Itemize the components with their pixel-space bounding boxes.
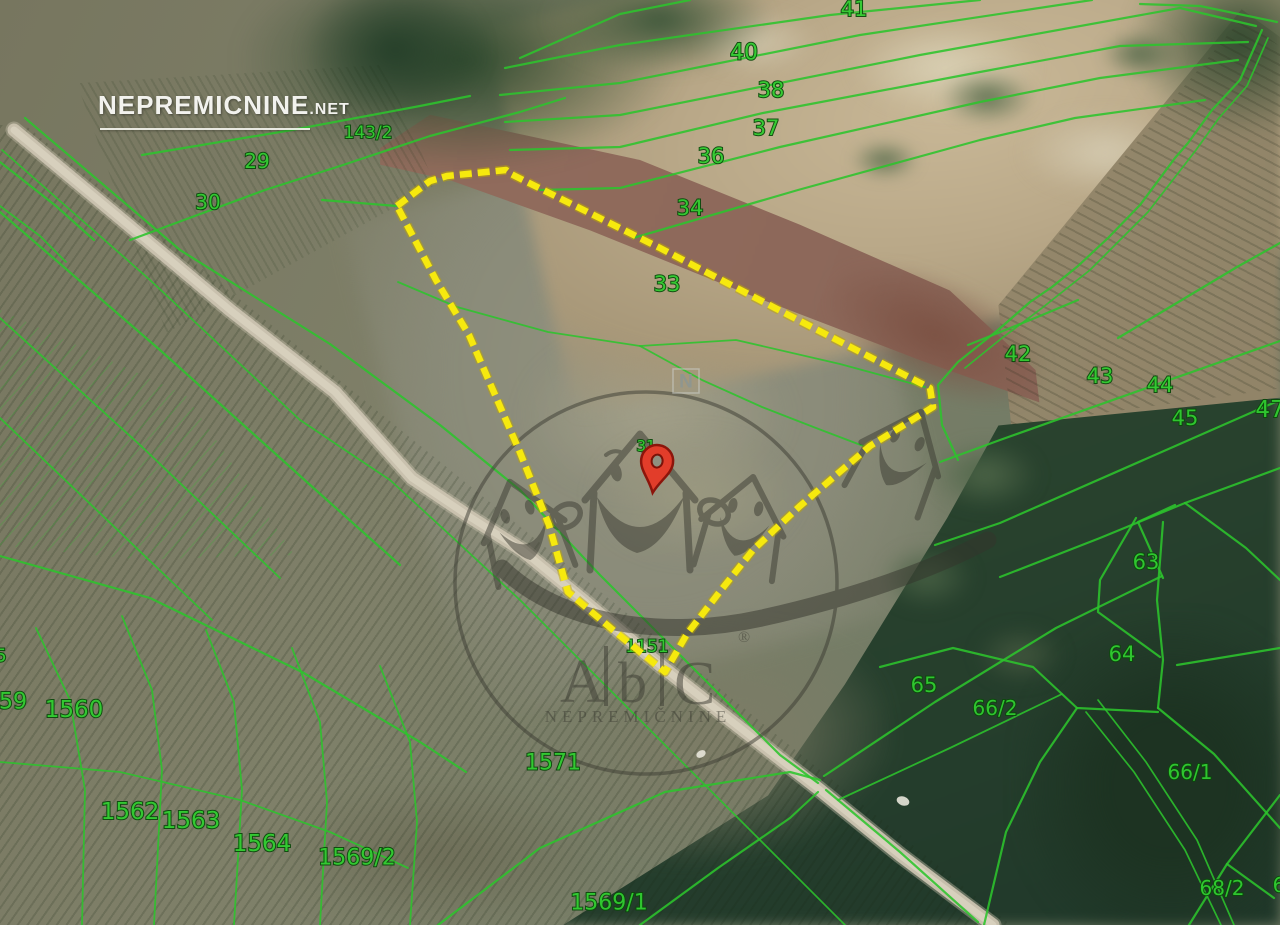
cadastral-line xyxy=(292,648,327,925)
cadastral-line xyxy=(2,150,845,925)
tree-clump xyxy=(940,70,1035,125)
divider-bar xyxy=(604,646,608,706)
tree-clump xyxy=(850,140,920,180)
cadastral-line xyxy=(25,118,818,783)
cadastral-line xyxy=(1138,505,1175,578)
house-wall xyxy=(686,493,690,570)
cadastral-line xyxy=(0,212,400,565)
cadastral-line xyxy=(1158,708,1280,828)
parcel-label-33: 33 xyxy=(654,272,681,296)
parcel-label-45: 45 xyxy=(1172,406,1199,430)
letter-c: C xyxy=(674,650,715,718)
watermark-circle xyxy=(455,392,837,774)
north-indicator: N xyxy=(673,369,699,393)
parcel-label-64: 64 xyxy=(1109,642,1136,666)
tree-clump xyxy=(1100,30,1180,78)
parcel-label-1563: 1563 xyxy=(162,808,221,834)
logo-underline xyxy=(100,128,310,130)
parcel-label-65: 65 xyxy=(911,673,938,697)
slope-field xyxy=(0,0,1280,925)
cadastral-line xyxy=(380,666,417,925)
abc-letters: A b C ® NEPREMIČNINE xyxy=(545,629,750,726)
tree-clump xyxy=(545,0,775,75)
forest xyxy=(0,0,1280,925)
highlighted-parcel-boundary xyxy=(397,170,933,672)
divider-bar xyxy=(660,646,664,706)
vineyard-rows xyxy=(0,0,1280,925)
cadastral-line xyxy=(640,346,866,447)
dense-parcel-lines xyxy=(0,0,1280,925)
letter-b: b xyxy=(618,650,647,715)
cadastral-line xyxy=(0,556,466,772)
cadastral-line xyxy=(540,60,1238,190)
cadastral-line xyxy=(1140,4,1277,22)
eyebrow xyxy=(606,451,624,455)
bottom-field xyxy=(523,601,908,888)
cadastral-line xyxy=(935,400,1280,545)
house-icon-right xyxy=(692,468,795,581)
cadastral-line xyxy=(36,628,85,925)
cadastral-line xyxy=(1098,518,1160,657)
cadastral-line xyxy=(824,576,1162,776)
house-wall xyxy=(590,493,594,570)
forest-clump xyxy=(880,545,975,610)
parcel-label-1569-1: 1569/1 xyxy=(570,891,647,916)
parcel-label-47: 47 xyxy=(1255,397,1280,423)
dry-field-patch xyxy=(1020,110,1190,195)
meadow-light-patch xyxy=(520,330,790,500)
parcel-label-1562: 1562 xyxy=(101,799,160,825)
cadastral-line xyxy=(968,300,1078,345)
parcel-labels: 414038373634332930143/231424344454763646… xyxy=(0,0,1280,916)
cadastral-line xyxy=(1086,712,1221,925)
parcel-label-1569-2: 1569/2 xyxy=(318,846,395,871)
hand-icon xyxy=(548,499,585,533)
parcel-label-63: 63 xyxy=(1133,550,1160,574)
logo-name: NEPREMICNINE xyxy=(98,90,309,120)
cadastral-line xyxy=(322,200,397,206)
cadastral-line xyxy=(1000,468,1280,577)
cadastral-line xyxy=(938,30,1262,460)
plowed-field xyxy=(0,0,1280,925)
cadastral-overlay: A b C ® NEPREMIČNINE 4140383736343329301… xyxy=(0,0,1280,925)
house-icon xyxy=(585,434,695,500)
cadastral-line xyxy=(1189,795,1280,925)
letter-a: A xyxy=(560,648,605,716)
vineyard-rows xyxy=(0,0,1280,925)
abc-watermark: A b C ® NEPREMIČNINE xyxy=(455,392,988,774)
road xyxy=(14,130,993,925)
forest-clump xyxy=(975,625,1065,685)
registered-mark: ® xyxy=(738,629,750,646)
map-canvas[interactable]: A b C ® NEPREMIČNINE 4140383736343329301… xyxy=(0,0,1280,925)
parcel-label-1564: 1564 xyxy=(233,831,292,857)
cadastral-line xyxy=(505,0,980,68)
cadastral-line xyxy=(122,616,162,925)
dry-field-patch xyxy=(690,10,820,75)
cadastral-line xyxy=(1185,503,1280,580)
swoosh xyxy=(502,540,988,628)
cadastral-line xyxy=(965,38,1268,368)
parcel-label-36: 36 xyxy=(698,144,725,168)
smiley-face xyxy=(597,459,685,553)
cadastral-line xyxy=(505,8,1256,122)
parcel-label-1560: 1560 xyxy=(45,697,104,723)
parcel-label-1571: 1571 xyxy=(525,751,581,776)
cadastral-line xyxy=(438,772,820,925)
parcel-label-1151: 1151 xyxy=(625,637,668,657)
cadastral-line xyxy=(0,162,94,240)
parcel-label-42: 42 xyxy=(1005,342,1032,366)
parcel-label-29: 29 xyxy=(244,149,269,173)
parcel-label-34: 34 xyxy=(677,196,704,220)
forest-clump xyxy=(930,440,1040,510)
cadastral-line xyxy=(1157,522,1163,708)
hand-icon xyxy=(696,495,733,529)
forest-dark xyxy=(1020,620,1280,925)
cadastral-line xyxy=(984,708,1077,925)
cadastral-line xyxy=(1118,243,1280,338)
parcel-label-30: 30 xyxy=(195,190,220,214)
dry-field-patch xyxy=(850,20,1040,115)
parcel-label-5: 5 xyxy=(0,646,7,667)
house-icon-far-right xyxy=(843,395,960,519)
location-marker-icon xyxy=(637,443,675,495)
parcel-label-37: 37 xyxy=(753,116,780,140)
parcel-label-43: 43 xyxy=(1087,364,1114,388)
cadastral-line xyxy=(510,42,1248,150)
meadow-light-patch xyxy=(590,430,800,560)
cadastral-line xyxy=(0,762,408,868)
svg-text:N: N xyxy=(679,372,693,393)
eyebrow xyxy=(643,449,661,453)
cadastral-line xyxy=(142,96,470,155)
cadastral-line xyxy=(520,0,690,58)
nepremicnine-logo: NEPREMICNINE.NET xyxy=(98,90,350,121)
parcel-label-66-2: 66/2 xyxy=(973,696,1018,720)
tree-clump xyxy=(240,0,680,170)
vineyard-rows xyxy=(0,0,1280,925)
plowed-field-dark xyxy=(808,238,1063,432)
cadastral-line xyxy=(398,282,925,387)
tree-clump xyxy=(300,0,490,125)
house-icon-left xyxy=(469,470,577,587)
parcel-label-31: 31 xyxy=(636,437,655,455)
agency-caption: NEPREMIČNINE xyxy=(545,707,732,726)
cadastral-line xyxy=(940,341,1280,462)
parcel-label-143-2: 143/2 xyxy=(344,123,393,143)
cadastral-line xyxy=(206,630,242,925)
parcel-label-59: 59 xyxy=(0,690,27,715)
bottom-field-dark xyxy=(280,780,600,925)
cadastral-line xyxy=(0,206,66,262)
parcel-label-38: 38 xyxy=(758,78,785,102)
cadastral-line xyxy=(1177,648,1280,665)
cadastral-line xyxy=(640,792,818,925)
parcel-label-68-2: 68/2 xyxy=(1200,876,1245,900)
white-object xyxy=(895,795,910,808)
cadastral-line xyxy=(838,694,1062,800)
parcel-label-44: 44 xyxy=(1147,373,1174,397)
tree-clump xyxy=(1130,0,1280,135)
meadow-field xyxy=(341,94,959,726)
parcel-label-41: 41 xyxy=(841,0,868,21)
logo-tld: .NET xyxy=(309,101,349,118)
dry-field xyxy=(486,0,1280,417)
cadastral-line xyxy=(826,790,978,922)
cadastral-line xyxy=(500,0,1092,95)
parcel-label-40: 40 xyxy=(730,41,758,66)
cadastral-line xyxy=(130,98,565,240)
cadastral-line xyxy=(633,100,1205,238)
white-object xyxy=(695,748,707,759)
cadastral-lines xyxy=(0,0,1280,925)
cadastral-line xyxy=(0,318,280,578)
cadastral-line xyxy=(1098,700,1234,925)
parcel-label-6: 6 xyxy=(1273,873,1280,897)
cadastral-line xyxy=(0,418,212,620)
cadastral-line xyxy=(880,648,1158,712)
cadastral-line xyxy=(1227,864,1274,898)
parcel-label-66-1: 66/1 xyxy=(1168,760,1213,784)
